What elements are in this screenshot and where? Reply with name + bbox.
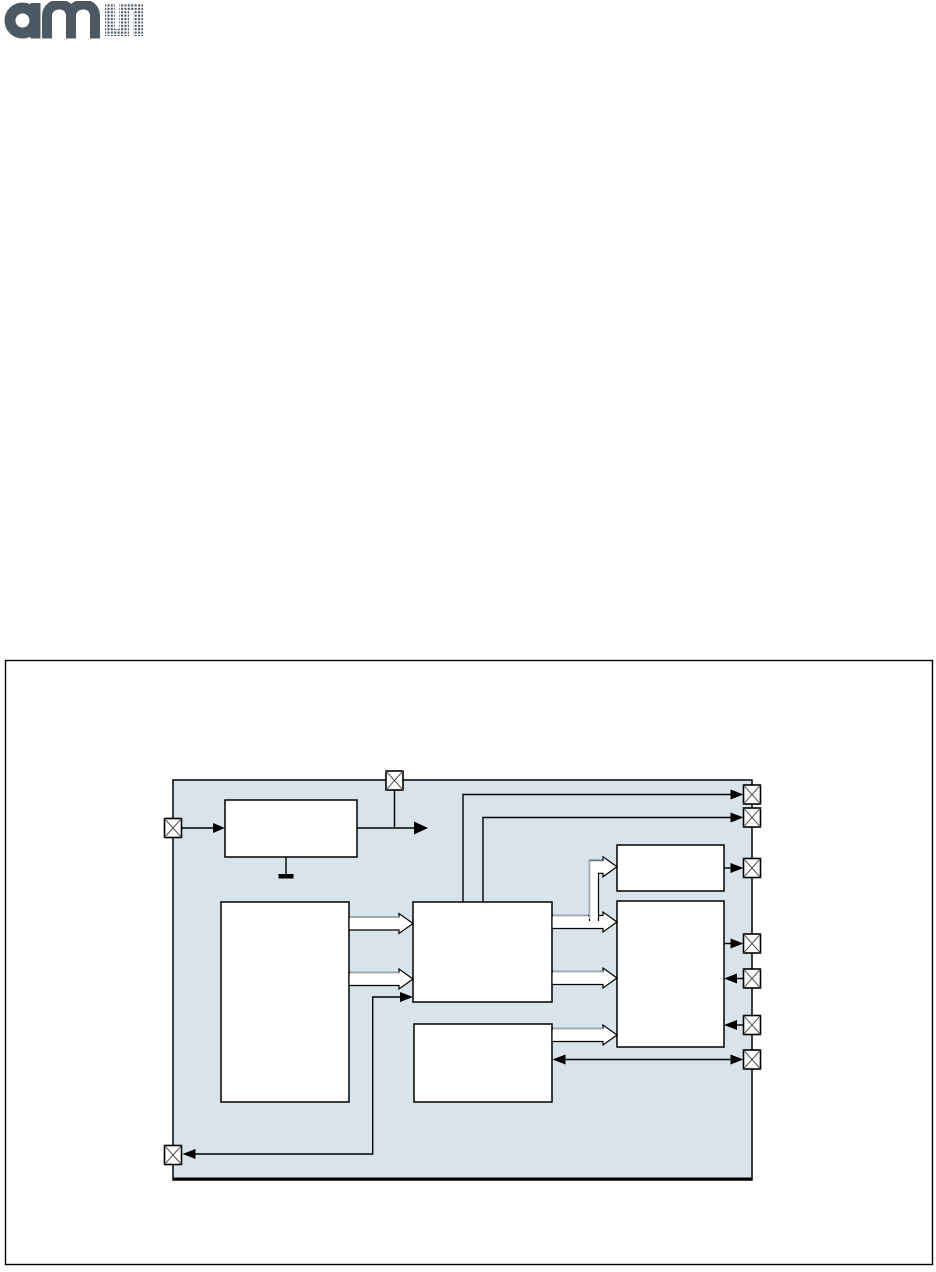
ground-bar: [279, 874, 294, 879]
pin-right-7: [744, 1050, 761, 1069]
pin-left: [165, 819, 182, 838]
left-large-block: [221, 902, 349, 1102]
figure-container: [0, 0, 936, 1272]
center-block: [413, 902, 552, 1002]
pin-right-6: [744, 1016, 761, 1035]
right-small-block: [617, 845, 724, 891]
right-large-block: [617, 901, 724, 1047]
block-diagram: [0, 0, 936, 1272]
top-left-block: [225, 800, 357, 857]
pin-right-5: [744, 969, 761, 988]
center-lower-block: [414, 1024, 552, 1102]
pin-right-4: [744, 934, 761, 953]
pin-right-1: [744, 785, 761, 804]
pin-top: [386, 771, 403, 790]
pin-bottom-left: [165, 1146, 182, 1165]
pin-right-2: [744, 808, 761, 827]
pin-right-3: [744, 859, 761, 878]
